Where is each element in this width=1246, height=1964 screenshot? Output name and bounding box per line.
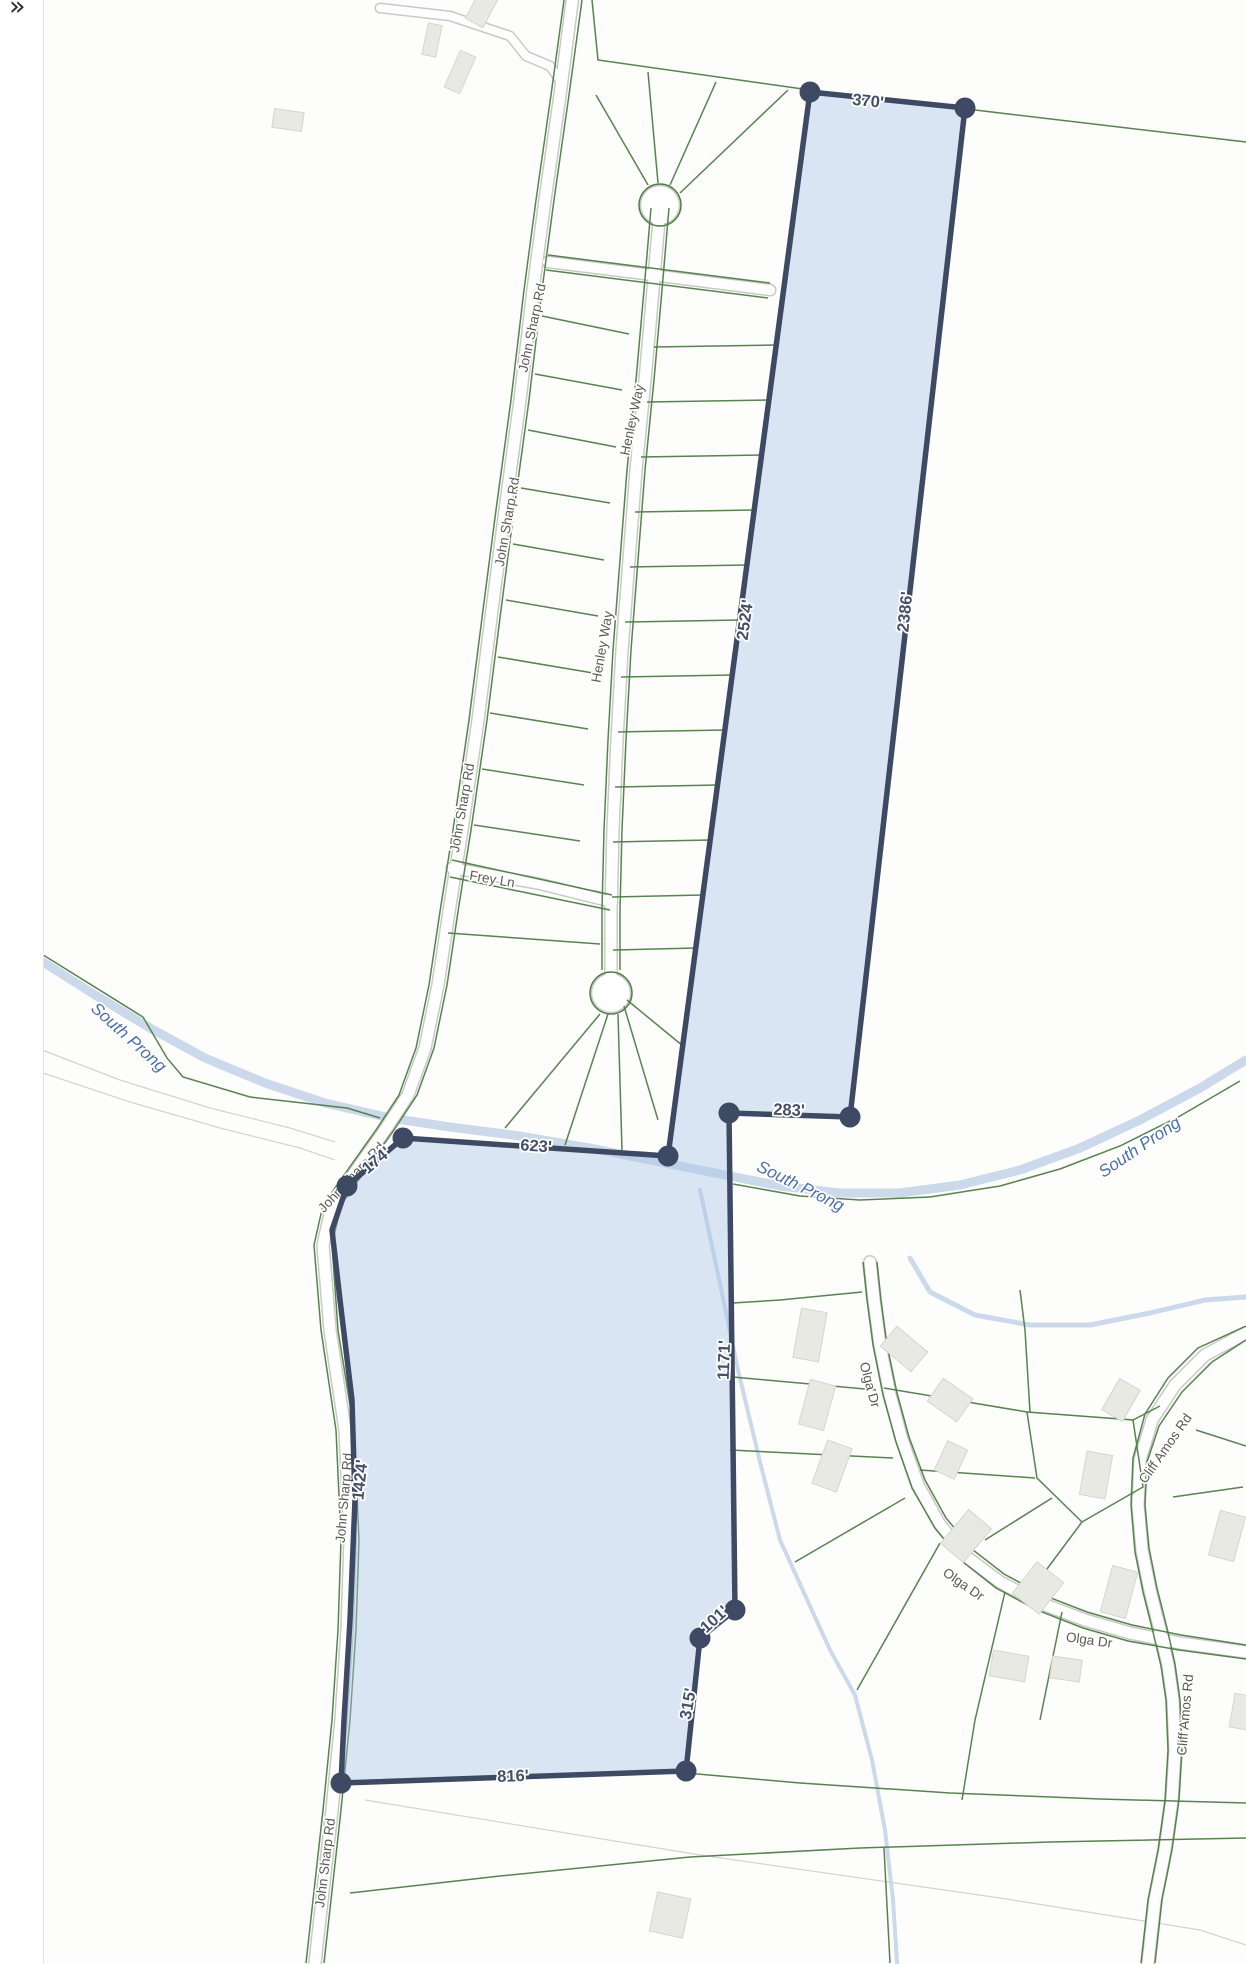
map-application: John Sharp RdJohn Sharp RdJohn Sharp RdJ… [0,0,1246,1964]
measurement-label: 1171' [715,1340,734,1380]
vertex-handle[interactable] [658,1146,679,1167]
vertex-handle[interactable] [337,1176,358,1197]
vertex-handle[interactable] [331,1773,352,1794]
building-footprint [989,1650,1029,1682]
vertex-handle[interactable] [719,1103,740,1124]
vertex-handle[interactable] [676,1761,697,1782]
building-footprint [1050,1656,1083,1682]
map-canvas[interactable]: John Sharp RdJohn Sharp RdJohn Sharp RdJ… [0,0,1246,1964]
measurement-label: 283' [773,1101,805,1120]
vertex-handle[interactable] [800,82,821,103]
building-footprint [272,109,304,132]
vertex-handle[interactable] [393,1128,414,1149]
expand-panel-icon[interactable]: » [9,0,26,22]
measurement-label: 370' [851,91,884,112]
vertex-handle[interactable] [955,98,976,119]
vertex-handle[interactable] [840,1107,861,1128]
measurement-label: 816' [497,1767,529,1786]
collapsed-sidebar: » [0,0,44,1964]
measurement-label: 623' [520,1136,553,1156]
